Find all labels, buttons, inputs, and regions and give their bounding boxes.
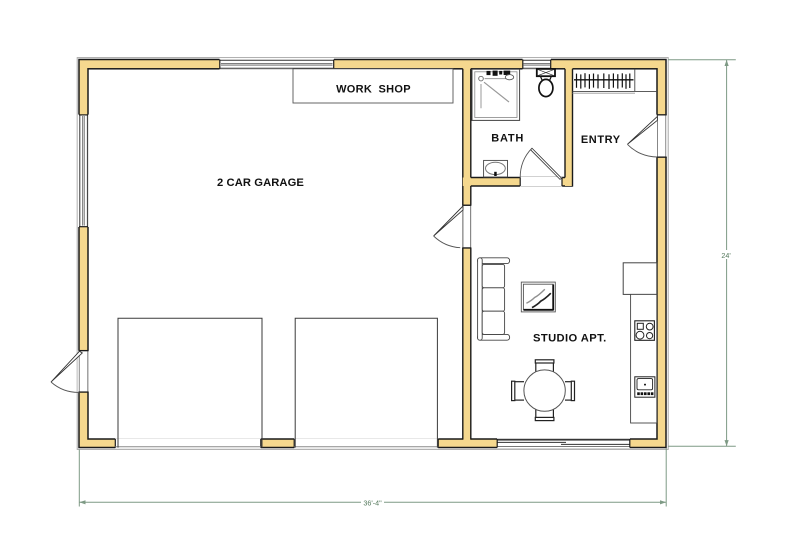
svg-text:ENTRY: ENTRY bbox=[581, 134, 621, 146]
svg-text:36'-4": 36'-4" bbox=[363, 498, 382, 507]
svg-text:STUDIO APT.: STUDIO APT. bbox=[533, 333, 607, 345]
svg-text:2 CAR GARAGE: 2 CAR GARAGE bbox=[217, 177, 304, 189]
svg-text:BATH: BATH bbox=[491, 133, 524, 145]
svg-text:24': 24' bbox=[721, 251, 731, 260]
svg-text:WORK SHOP: WORK SHOP bbox=[336, 83, 411, 95]
